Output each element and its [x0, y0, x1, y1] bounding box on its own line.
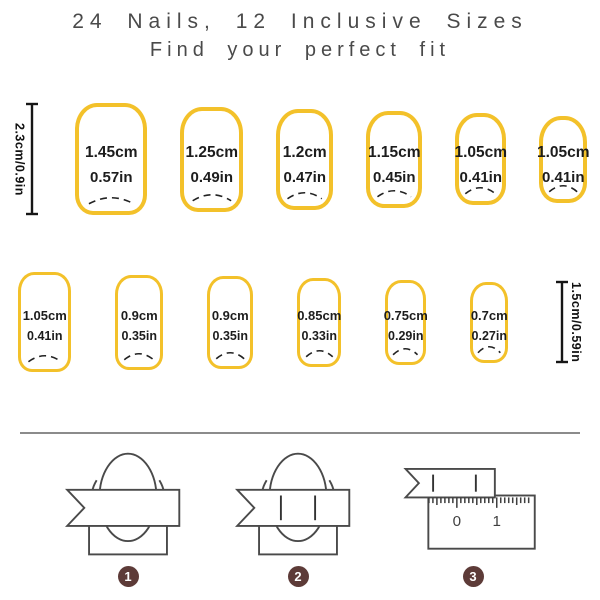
measure-line-icon	[555, 280, 569, 364]
nail-cm-label: 0.75cm	[384, 309, 428, 322]
nail-in-label: 0.35in	[213, 330, 248, 343]
step-number-badge: 3	[463, 566, 484, 587]
ruler-measure-illustration-icon: 0 1	[398, 448, 548, 562]
title-line1: 24 Nails, 12 Inclusive Sizes	[0, 10, 600, 34]
nail-row-2: 1.05cm 0.41in 0.9cm 0.35in 0.9cm 0.35in …	[0, 272, 600, 372]
nail-cm-label: 1.45cm	[85, 145, 138, 161]
nail-r1-4: 1.15cm 0.45in	[366, 111, 422, 208]
finger-wrap-illustration-icon	[58, 448, 198, 562]
nail-r2-2: 0.9cm 0.35in	[115, 275, 163, 370]
nail-r1-3: 1.2cm 0.47in	[276, 109, 333, 210]
nail-r1-6: 1.05cm 0.41in	[539, 116, 587, 203]
step-1-wrap-tape: 1	[58, 448, 198, 587]
nail-r2-6: 0.7cm 0.27in	[470, 282, 508, 363]
smile-line-icon	[305, 344, 334, 359]
step-number-badge: 2	[288, 566, 309, 587]
nail-r1-1: 1.45cm 0.57in	[75, 103, 147, 215]
smile-line-icon	[123, 347, 155, 362]
nail-r2-5: 0.75cm 0.29in	[385, 280, 426, 365]
step-2-mark-width: 2	[228, 448, 368, 587]
nail-row-1: 2.3cm/0.9in 1.45cm 0.57in 1.25cm 0.49in …	[0, 102, 600, 216]
nail-in-label: 0.49in	[190, 170, 233, 185]
nail-r2-4: 0.85cm 0.33in	[297, 278, 341, 367]
smile-line-icon	[376, 184, 412, 199]
nail-r1-5: 1.05cm 0.41in	[455, 113, 506, 205]
smile-line-icon	[215, 346, 245, 361]
smile-line-icon	[27, 349, 63, 364]
smile-line-icon	[392, 342, 419, 357]
nail-cm-label: 1.05cm	[537, 145, 590, 161]
title-line2: Find your perfect fit	[0, 39, 600, 62]
nail-in-label: 0.41in	[27, 330, 62, 343]
nail-cm-label: 1.25cm	[185, 145, 238, 161]
row2-height-measure: 1.5cm/0.59in	[555, 280, 582, 364]
title-block: 24 Nails, 12 Inclusive Sizes Find your p…	[0, 0, 600, 62]
nail-in-label: 0.35in	[122, 330, 157, 343]
nail-cm-label: 0.9cm	[121, 309, 158, 322]
nail-r2-3: 0.9cm 0.35in	[207, 276, 253, 369]
row2-height-label: 1.5cm/0.59in	[569, 282, 582, 362]
measurement-steps: 1 2 0 1 3	[0, 448, 600, 587]
nail-in-label: 0.33in	[302, 330, 337, 343]
smile-line-icon	[477, 340, 501, 355]
nail-cm-label: 1.05cm	[454, 145, 507, 161]
nail-cm-label: 1.2cm	[283, 145, 327, 161]
row1-height-label: 2.3cm/0.9in	[13, 123, 26, 196]
smile-line-icon	[286, 186, 323, 201]
nail-cm-label: 0.9cm	[212, 309, 249, 322]
row1-height-measure: 2.3cm/0.9in	[13, 102, 40, 216]
nail-cm-label: 0.85cm	[297, 309, 341, 322]
ruler-one-label: 1	[493, 513, 501, 530]
smile-line-icon	[464, 181, 497, 196]
smile-line-icon	[87, 191, 136, 206]
nail-r2-1: 1.05cm 0.41in	[18, 272, 71, 372]
nail-cm-label: 0.7cm	[471, 309, 508, 322]
step-number-badge: 1	[118, 566, 139, 587]
step-3-measure-ruler: 0 1 3	[398, 448, 548, 587]
measure-line-icon	[25, 102, 39, 216]
finger-mark-illustration-icon	[228, 448, 368, 562]
nail-r1-2: 1.25cm 0.49in	[180, 107, 243, 212]
nail-cm-label: 1.15cm	[368, 145, 421, 161]
ruler-zero-label: 0	[453, 513, 461, 530]
smile-line-icon	[191, 188, 233, 203]
nail-cm-label: 1.05cm	[23, 309, 67, 322]
nail-in-label: 0.47in	[283, 170, 326, 185]
section-divider	[20, 432, 580, 434]
nail-in-label: 0.57in	[90, 170, 133, 185]
smile-line-icon	[548, 179, 578, 194]
nail-size-chart: 24 Nails, 12 Inclusive Sizes Find your p…	[0, 0, 600, 600]
